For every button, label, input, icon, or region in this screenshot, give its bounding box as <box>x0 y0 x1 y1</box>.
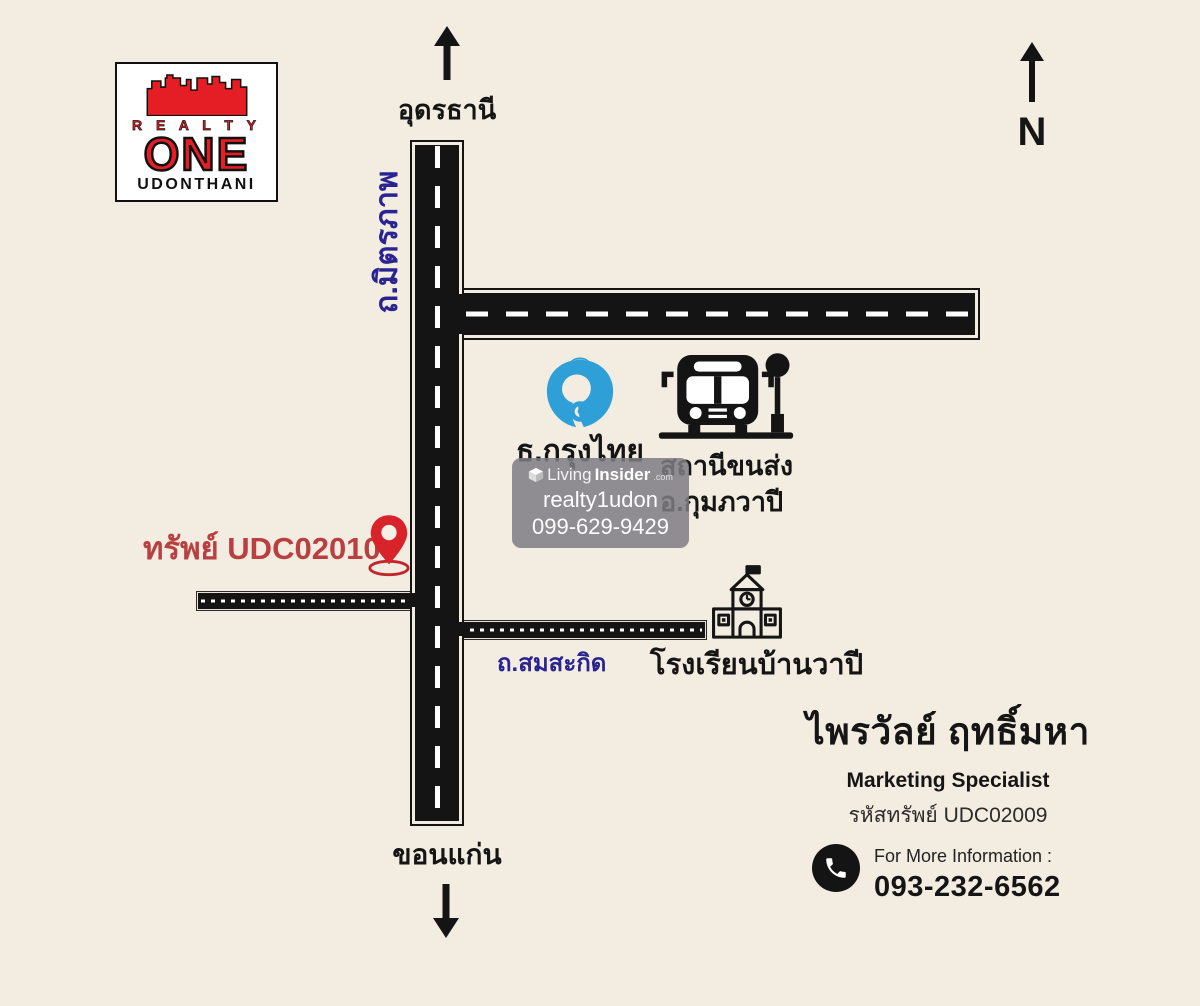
property-code: รหัสทรัพย์ UDC02009 <box>780 799 1116 832</box>
bus-station-icon <box>657 352 795 440</box>
phone-info: For More Information : 093-232-6562 <box>874 844 1061 904</box>
city-skyline-icon <box>131 72 263 116</box>
watermark-brand-light: Living <box>547 466 591 485</box>
watermark-account: realty1udon <box>543 487 658 513</box>
mittraphap-road-label: ถ.มิตรภาพ <box>361 171 411 314</box>
road-center-dashes <box>435 146 440 808</box>
school-label: โรงเรียนบ้านวาปี <box>650 641 863 687</box>
road-surface <box>457 622 705 638</box>
road-center-dashes <box>466 312 969 317</box>
road-center-dots <box>201 600 435 603</box>
road-surface <box>198 593 438 609</box>
map-flyer: { "colors": { "background": "#f3ece1", "… <box>0 0 1200 1006</box>
school-icon <box>703 563 791 647</box>
somsakid-road-label: ถ.สมสะกิด <box>497 643 606 682</box>
phone-handset-icon <box>823 855 849 881</box>
road-junction-patch <box>457 294 465 334</box>
phone-icon <box>812 844 860 892</box>
contact-phone-number: 093-232-6562 <box>874 871 1061 904</box>
north-city-label: อุดรธานี <box>398 88 496 131</box>
phone-row: For More Information : 093-232-6562 <box>780 844 1116 904</box>
agent-role: Marketing Specialist <box>780 769 1116 793</box>
krungthai-bank-icon <box>543 356 617 432</box>
watermark-overlay: LivingInsider.com realty1udon 099-629-94… <box>512 458 689 548</box>
road-junction-patch <box>411 593 418 607</box>
road-surface <box>460 293 975 335</box>
watermark-cube-icon <box>528 467 544 483</box>
watermark-brand-bold: Insider <box>595 466 651 485</box>
logo-one-text: ONE <box>144 133 250 175</box>
small-road-west <box>196 591 440 611</box>
watermark-brand-tld: .com <box>653 473 673 483</box>
contact-block: ไพรวัลย์ ฤทธิ์มหา Marketing Specialist ร… <box>780 702 1116 904</box>
property-label: ทรัพย์ UDC02010 <box>143 523 381 573</box>
logo-city-text: UDONTHANI <box>137 176 256 194</box>
road-center-dots <box>460 629 702 632</box>
road-junction-patch <box>457 622 465 636</box>
compass-arrow-icon <box>1017 42 1047 104</box>
main-horizontal-road <box>455 288 980 340</box>
location-pin-icon <box>366 512 412 578</box>
realty-one-logo: R E A L T Y ONE UDONTHANI <box>115 62 278 202</box>
south-city-label: ขอนแก่น <box>392 833 501 877</box>
compass-n-label: N <box>1018 110 1047 155</box>
agent-name: ไพรวัลย์ ฤทธิ์มหา <box>780 702 1116 761</box>
small-road-somsakid <box>455 620 707 640</box>
north-direction-arrow-icon <box>432 26 462 82</box>
south-direction-arrow-icon <box>431 880 461 938</box>
info-label: For More Information : <box>874 846 1061 867</box>
watermark-phone: 099-629-9429 <box>532 514 669 540</box>
watermark-brand: LivingInsider.com <box>528 466 673 485</box>
